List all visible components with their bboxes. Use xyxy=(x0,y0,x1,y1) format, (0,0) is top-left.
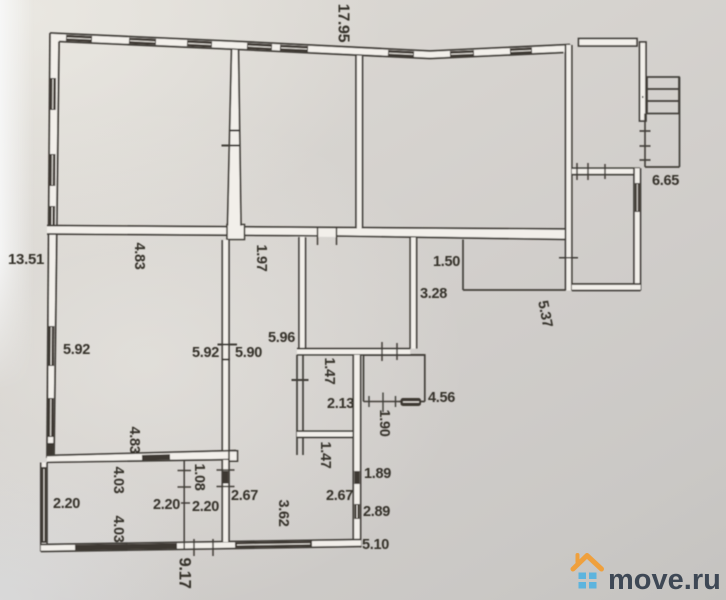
svg-text:5.92: 5.92 xyxy=(192,345,219,361)
svg-text:move.ru: move.ru xyxy=(608,564,721,596)
svg-text:2.20: 2.20 xyxy=(153,497,180,513)
svg-text:13.51: 13.51 xyxy=(8,251,44,268)
svg-text:3.62: 3.62 xyxy=(275,499,291,526)
svg-text:9.17: 9.17 xyxy=(176,558,194,589)
svg-text:2.13: 2.13 xyxy=(327,396,354,412)
svg-text:4.03: 4.03 xyxy=(110,515,126,542)
svg-text:1.90: 1.90 xyxy=(376,409,392,436)
svg-text:1.47: 1.47 xyxy=(317,441,333,468)
svg-text:5.92: 5.92 xyxy=(63,342,90,358)
svg-text:17.95: 17.95 xyxy=(334,4,351,43)
svg-text:1.50: 1.50 xyxy=(433,254,460,270)
svg-text:2.67: 2.67 xyxy=(326,488,353,504)
svg-text:4.03: 4.03 xyxy=(110,466,126,493)
svg-text:5.90: 5.90 xyxy=(235,345,262,361)
svg-text:4.83: 4.83 xyxy=(131,242,147,269)
svg-text:1.08: 1.08 xyxy=(191,463,207,490)
svg-text:1.89: 1.89 xyxy=(364,466,391,482)
svg-text:2.89: 2.89 xyxy=(363,504,390,520)
svg-text:3.28: 3.28 xyxy=(420,286,447,302)
svg-text:5.96: 5.96 xyxy=(268,330,295,346)
svg-text:2.67: 2.67 xyxy=(231,488,258,504)
svg-text:5.10: 5.10 xyxy=(362,537,389,553)
svg-text:2.20: 2.20 xyxy=(192,499,219,515)
svg-text:1.97: 1.97 xyxy=(253,244,269,271)
svg-text:2.20: 2.20 xyxy=(53,496,80,512)
svg-text:1.47: 1.47 xyxy=(321,357,337,384)
svg-text:5.37: 5.37 xyxy=(534,299,555,329)
svg-text:6.65: 6.65 xyxy=(652,173,679,189)
svg-text:4.83: 4.83 xyxy=(126,426,142,453)
svg-text:4.56: 4.56 xyxy=(428,390,455,406)
